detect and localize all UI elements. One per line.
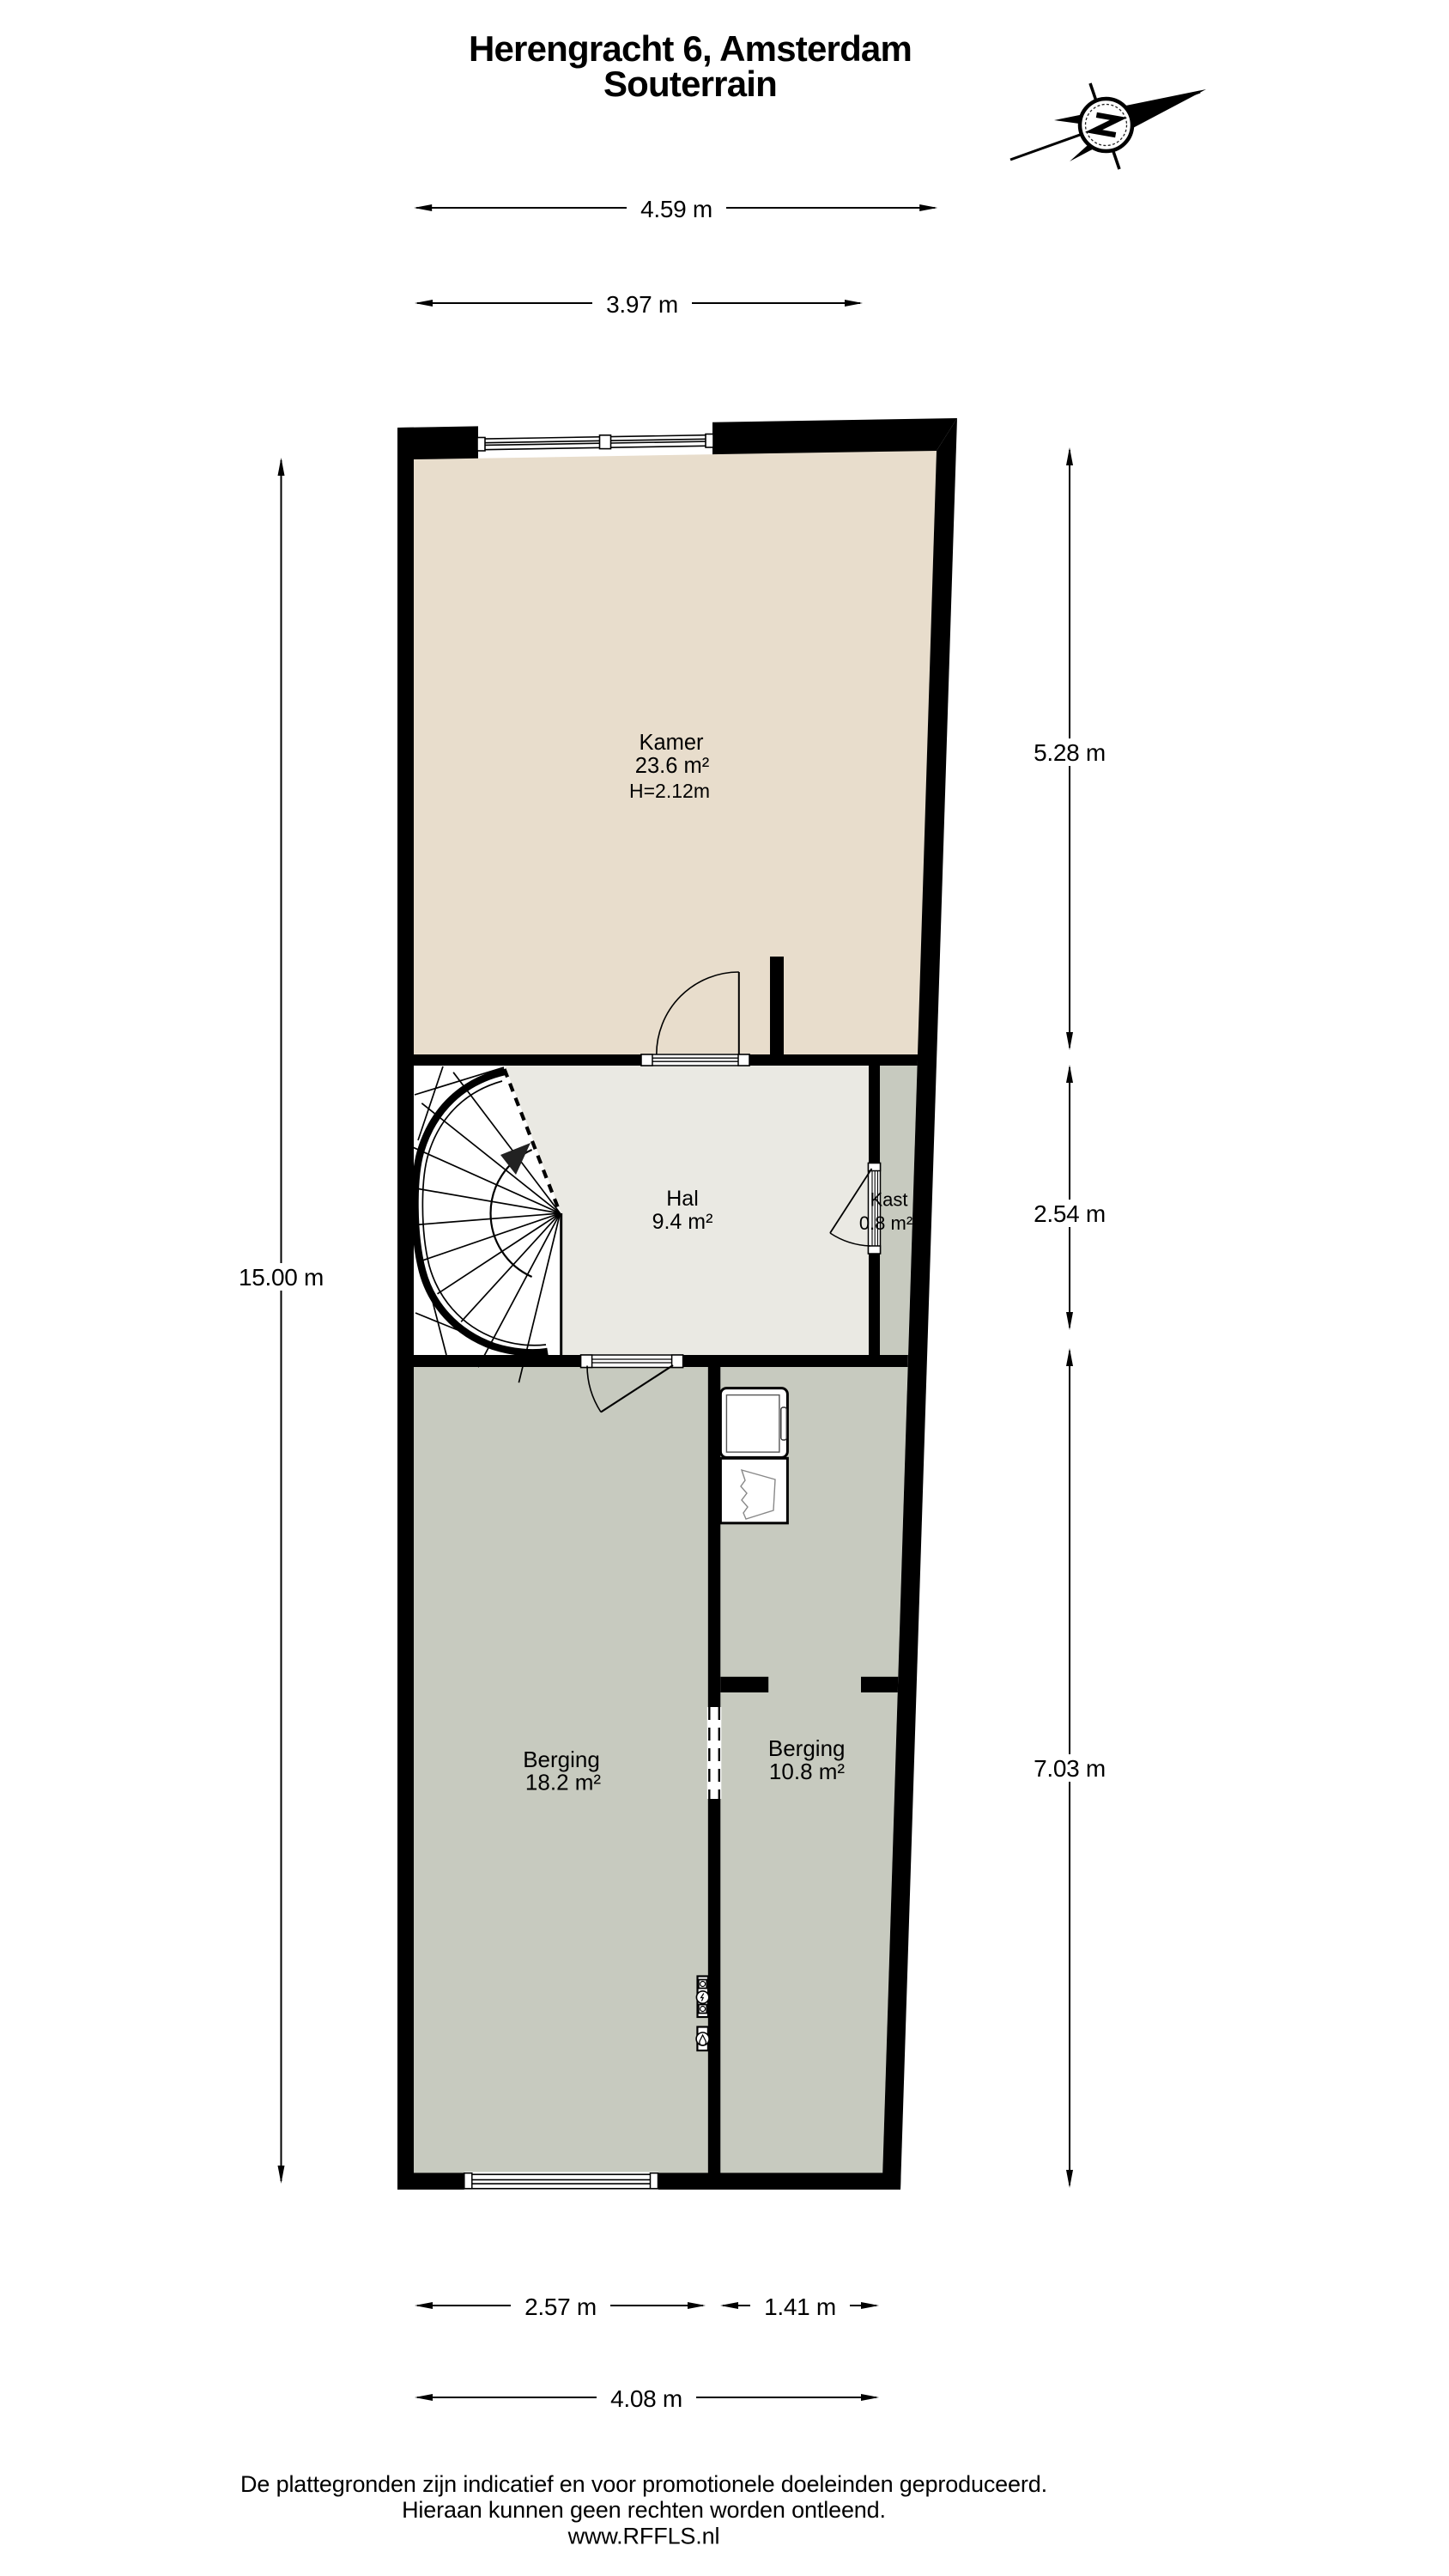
svg-text:4.08 m: 4.08 m <box>610 2385 682 2412</box>
svg-text:2.54 m: 2.54 m <box>1034 1200 1106 1227</box>
svg-text:5.28 m: 5.28 m <box>1034 739 1106 766</box>
svg-text:Berging: Berging <box>768 1735 846 1761</box>
svg-text:www.RFFLS.nl: www.RFFLS.nl <box>567 2524 720 2549</box>
svg-text:Kast: Kast <box>870 1189 907 1211</box>
svg-text:23.6 m²: 23.6 m² <box>635 754 709 778</box>
svg-text:H=2.12m: H=2.12m <box>629 780 710 802</box>
svg-text:Hal: Hal <box>666 1187 699 1211</box>
svg-text:3.97 m: 3.97 m <box>606 291 678 318</box>
svg-text:1.41 m: 1.41 m <box>764 2293 836 2320</box>
svg-text:Herengracht 6, Amsterdam: Herengracht 6, Amsterdam <box>469 28 912 69</box>
svg-text:0.8 m²: 0.8 m² <box>859 1212 912 1234</box>
svg-text:Hieraan kunnen geen rechten wo: Hieraan kunnen geen rechten worden ontle… <box>402 2497 886 2523</box>
svg-text:7.03 m: 7.03 m <box>1034 1755 1106 1782</box>
svg-text:Kamer: Kamer <box>639 731 704 755</box>
svg-text:18.2 m²: 18.2 m² <box>525 1770 601 1795</box>
svg-text:Souterrain: Souterrain <box>603 64 777 104</box>
svg-text:10.8 m²: 10.8 m² <box>769 1759 845 1784</box>
svg-text:9.4 m²: 9.4 m² <box>652 1210 713 1234</box>
svg-text:2.57 m: 2.57 m <box>524 2293 597 2320</box>
svg-text:4.59 m: 4.59 m <box>640 196 712 222</box>
svg-text:Berging: Berging <box>523 1747 600 1772</box>
svg-text:De plattegronden zijn indicati: De plattegronden zijn indicatief en voor… <box>240 2471 1047 2497</box>
svg-text:15.00 m: 15.00 m <box>239 1264 324 1291</box>
